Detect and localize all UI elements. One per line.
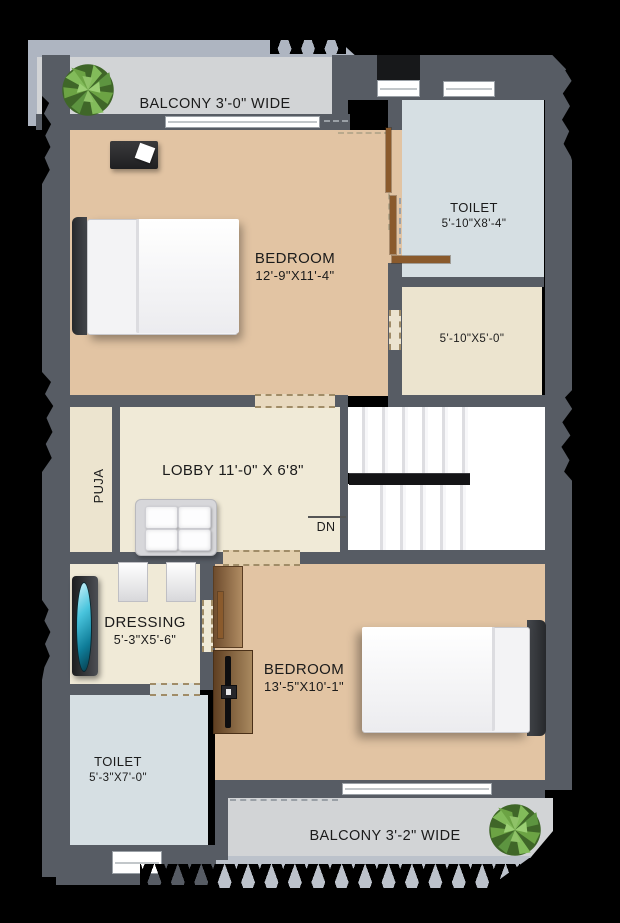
- toilet-bottom-label: TOILET 5'-3"X7'-0": [66, 754, 170, 785]
- sofa-cushion: [178, 529, 211, 551]
- bedroom-bottom-window: [342, 783, 492, 795]
- stair-flight-upper: [348, 407, 470, 473]
- puja-right-wall: [112, 407, 120, 556]
- store-door-opening: [389, 310, 401, 350]
- balcony-top-label: BALCONY 3'-0" WIDE: [105, 95, 325, 114]
- balcony-bottom-label: BALCONY 3'-2" WIDE: [280, 827, 490, 846]
- dn-label: DN: [306, 519, 346, 535]
- toilet-top-label: TOILET 5'-10"X8'-4": [422, 200, 526, 231]
- balcony-right-wall: [332, 55, 348, 116]
- room-dims: 12'-9"X11'-4": [235, 268, 355, 285]
- dressing-shelf: [118, 562, 148, 602]
- room-dims: 5'-3"X5'-6": [95, 632, 195, 648]
- room-name: TOILET: [422, 200, 526, 217]
- puja-label: PUJA: [91, 458, 107, 514]
- top-right-wall: [332, 55, 545, 100]
- dn-line: [308, 516, 346, 518]
- stairs-bottom-wall: [348, 550, 545, 564]
- stair-filler: [348, 484, 366, 550]
- toilet-door-leaf: [392, 256, 450, 263]
- tv-bracket: [221, 685, 237, 699]
- toilet-top-window: [443, 81, 495, 97]
- lobby-label: LOBBY 11'-0" X 6'8": [133, 461, 333, 480]
- sofa-cushion: [145, 529, 178, 551]
- balcony-boundary-dash: [324, 120, 348, 122]
- bed-duvet: [136, 219, 239, 333]
- door-swing-dash: [338, 132, 390, 230]
- bed-duvet: [362, 627, 495, 731]
- sofa: [135, 499, 217, 556]
- room-dims: 5'-10"X8'-4": [422, 217, 526, 232]
- bedroom2-door-opening: [223, 550, 300, 566]
- floor-plan: BALCONY 3'-0" WIDE BEDROOM 12'-9"X11'-4": [0, 0, 620, 923]
- toilet2-door-opening: [150, 683, 200, 696]
- store-label: 5'-10"X5'-0": [420, 332, 524, 347]
- plant-icon: [487, 802, 543, 858]
- cropped-text-letter-bottoms: [270, 40, 346, 54]
- store-bottom-wall: [388, 395, 545, 407]
- bedroom-top-window: [165, 116, 320, 128]
- mirror-icon: [76, 582, 92, 672]
- desk-paper: [135, 143, 156, 164]
- toilet-top-floor: [402, 100, 544, 277]
- entry-door-leaf: [377, 80, 420, 97]
- door-dash: [399, 198, 401, 254]
- room-dims: 5'-3"X7'-0": [66, 771, 170, 786]
- dressing-label: DRESSING 5'-3"X5'-6": [95, 613, 195, 648]
- entry-doorway-gap: [377, 55, 420, 80]
- dressing-shelf: [166, 562, 196, 602]
- sofa-cushion: [145, 506, 178, 529]
- dressing-toilet-wall: [70, 684, 150, 695]
- room-name: BEDROOM: [235, 249, 355, 268]
- sofa-cushion: [178, 506, 211, 529]
- bedroom-top-label: BEDROOM 12'-9"X11'-4": [235, 249, 355, 285]
- dressing-door-opening: [202, 600, 213, 652]
- bed-headboard: [72, 217, 87, 335]
- bedroom-bottom-label: BEDROOM 13'-5"X10'-1": [242, 660, 366, 696]
- desk: [110, 141, 158, 169]
- stair-divider: [349, 473, 470, 485]
- stair-flight-lower: [366, 484, 470, 550]
- toilet-top-wall-stub: [388, 100, 402, 130]
- room-name: TOILET: [66, 754, 170, 771]
- balcony-bottom-left-wall: [215, 798, 228, 860]
- room-name: BEDROOM: [242, 660, 366, 679]
- balcony2-boundary-dash: [230, 799, 338, 801]
- cropped-title-letter-tops: [140, 864, 520, 888]
- room-dims: 13'-5"X10'-1": [242, 679, 366, 696]
- wall-stub: [388, 263, 402, 277]
- toilet-store-divider-wall: [388, 277, 544, 287]
- stair-landing: [470, 407, 545, 550]
- door-leaf: [390, 196, 396, 254]
- door-leaf: [218, 592, 223, 638]
- door-leaf: [386, 128, 391, 192]
- bedroom-door-opening: [255, 394, 335, 408]
- room-name: DRESSING: [95, 613, 195, 632]
